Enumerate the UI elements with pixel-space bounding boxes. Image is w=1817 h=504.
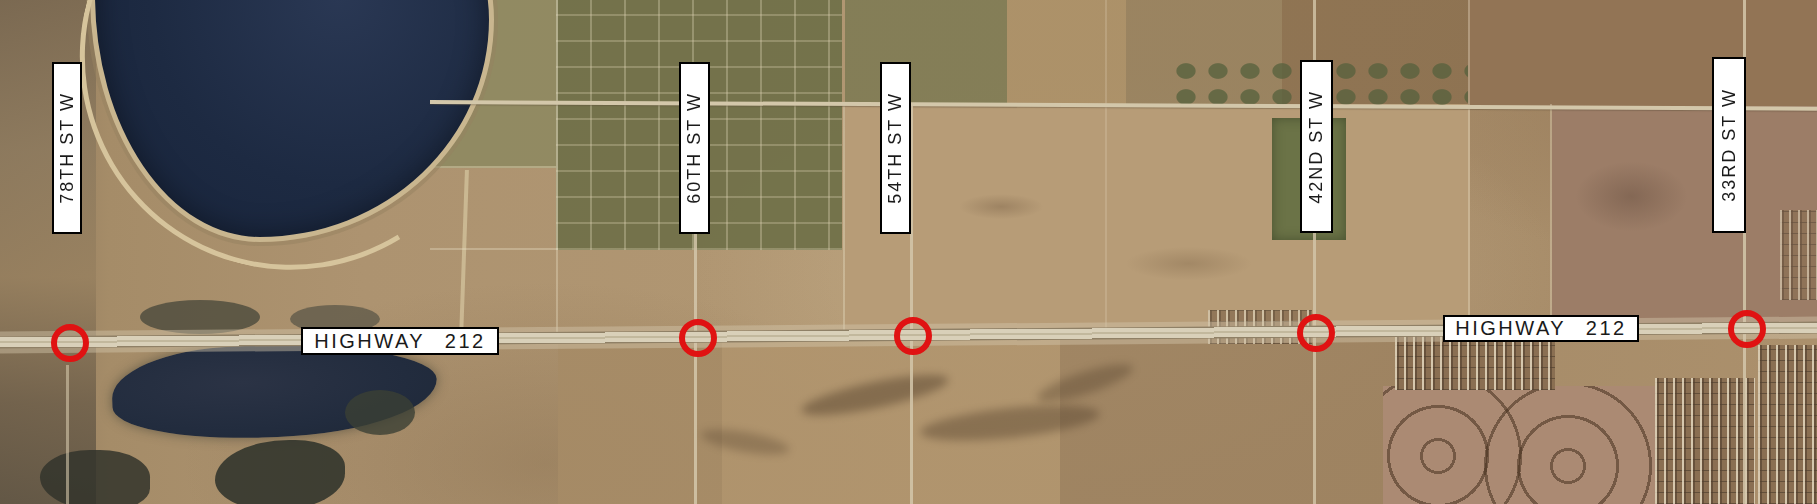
terrain-track-field [1383, 386, 1660, 504]
housing-subdivision [1758, 345, 1817, 504]
intersection-marker-54th-st-w [894, 317, 932, 355]
housing-subdivision [1655, 378, 1755, 504]
lake-east-road [459, 170, 469, 338]
terrain-center-fields [845, 104, 1470, 332]
terrain-northeast-field [1468, 0, 1817, 106]
lakeshore-road [34, 0, 549, 315]
intersection-marker-60th-st-w [679, 319, 717, 357]
marsh-patch [215, 440, 345, 504]
terrain-east-field [1552, 106, 1817, 332]
housing-subdivision [1780, 210, 1817, 300]
street-label-text: 42ND ST W [1306, 90, 1327, 204]
highway-label-text: HIGHWAY 212 [1455, 317, 1626, 340]
street-label-78th-st-w: 78TH ST W [52, 62, 82, 234]
street-label-text: 33RD ST W [1719, 88, 1740, 202]
concentric-track-rings [1478, 386, 1658, 504]
street-label-text: 60TH ST W [684, 92, 705, 204]
street-label-text: 54TH ST W [885, 92, 906, 204]
highway-label-2: HIGHWAY 212 [1443, 315, 1639, 342]
field-boundary-line [430, 248, 558, 250]
aerial-map: 78TH ST W60TH ST W54TH ST W42ND ST W33RD… [0, 0, 1817, 504]
78th-st-road [66, 365, 69, 504]
intersection-marker-42nd-st-w [1297, 314, 1335, 352]
field-boundary-line [843, 104, 845, 332]
intersection-marker-78th-st-w [51, 324, 89, 362]
street-label-33rd-st-w: 33RD ST W [1712, 57, 1746, 233]
field-boundary-line [556, 0, 558, 332]
field-boundary-line [1468, 0, 1470, 332]
marsh-patch [345, 390, 415, 435]
street-label-60th-st-w: 60TH ST W [679, 62, 710, 234]
field-boundary-line [1550, 104, 1552, 332]
highway-label-1: HIGHWAY 212 [301, 327, 499, 355]
street-label-42nd-st-w: 42ND ST W [1300, 60, 1333, 233]
field-boundary-line [1105, 0, 1107, 332]
marsh-patch [40, 450, 150, 504]
highway-label-text: HIGHWAY 212 [314, 330, 485, 353]
street-label-54th-st-w: 54TH ST W [880, 62, 911, 234]
street-label-text: 78TH ST W [57, 92, 78, 204]
intersection-marker-33rd-st-w [1728, 310, 1766, 348]
